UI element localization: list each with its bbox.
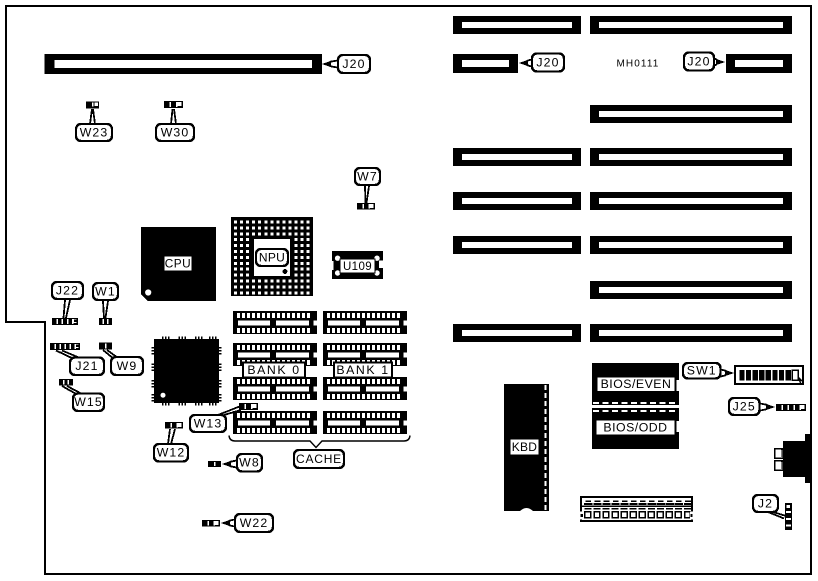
svg-text:J22: J22 [56,283,79,297]
svg-text:CACHE: CACHE [296,452,342,466]
svg-text:W7: W7 [357,169,378,183]
svg-text:J25: J25 [733,399,756,413]
svg-text:W13: W13 [194,416,223,430]
svg-text:BANK 1: BANK 1 [336,363,389,377]
svg-text:W8: W8 [239,456,260,470]
svg-text:W15: W15 [74,395,103,409]
svg-text:J20: J20 [342,57,365,71]
svg-text:MH0111: MH0111 [617,59,660,70]
svg-text:BIOS/EVEN: BIOS/EVEN [601,377,672,391]
svg-text:J20: J20 [687,54,710,68]
svg-text:BANK 0: BANK 0 [247,363,300,377]
svg-text:BIOS/ODD: BIOS/ODD [603,420,667,434]
svg-text:W30: W30 [161,125,190,139]
svg-text:W1: W1 [95,284,116,298]
svg-text:KBD: KBD [512,440,538,454]
svg-text:W23: W23 [80,125,109,139]
svg-text:J2: J2 [758,496,773,510]
svg-text:U109: U109 [343,261,372,273]
svg-text:NPU: NPU [259,250,285,264]
svg-text:J20: J20 [536,55,559,69]
svg-text:J21: J21 [75,359,98,373]
svg-text:W9: W9 [117,359,138,373]
svg-text:CPU: CPU [165,256,191,270]
svg-text:W12: W12 [157,446,186,460]
svg-text:W22: W22 [240,516,269,530]
svg-text:SW1: SW1 [687,364,717,378]
